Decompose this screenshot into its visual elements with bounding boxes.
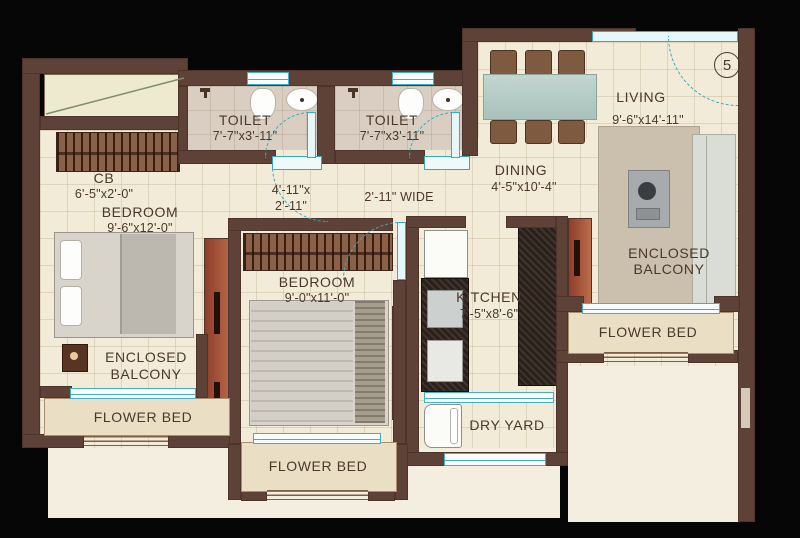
kitchen-dims: 7'-5"x8'-6" — [460, 307, 518, 321]
duct-corner-box — [44, 74, 188, 120]
tv-knob — [638, 182, 656, 200]
wall — [40, 386, 72, 398]
dining-label: DINING — [495, 162, 548, 178]
bedroom-2-label: BEDROOM — [279, 274, 356, 290]
wall — [738, 28, 755, 522]
shower-stem-toilet-1 — [204, 88, 207, 98]
pillow-1-bedroom-1 — [60, 240, 82, 280]
wall — [228, 218, 393, 231]
bedroom-2-dims: 9'-0"x11'-0" — [285, 291, 349, 305]
wall — [406, 216, 466, 228]
cupboard-dims: 6'-5"x2'-0" — [75, 187, 133, 201]
duvet-bedroom-2 — [251, 302, 353, 422]
toilet-2-label: TOILET — [366, 112, 418, 128]
sofa-balcony-right — [692, 134, 736, 310]
passage-dims-line2: 2'-11" — [275, 199, 307, 213]
wall — [393, 280, 406, 444]
window-balcony-left — [70, 388, 196, 399]
wall — [556, 216, 568, 456]
dining-chair — [525, 120, 552, 144]
pillow-2-bedroom-1 — [60, 286, 82, 326]
flower-bed-right-label: FLOWER BED — [599, 324, 698, 340]
wall — [22, 58, 188, 74]
kitchen-counter-right — [518, 222, 558, 386]
wall — [556, 296, 584, 312]
door-threshold-toilet-2 — [424, 156, 470, 170]
outside-area-bottom-right — [568, 366, 738, 522]
dining-table — [483, 74, 597, 120]
wall — [406, 216, 419, 456]
window-dry-yard — [444, 453, 546, 466]
cupboard-label: CB — [94, 170, 115, 186]
balcony-left-label-line1: ENCLOSED — [105, 349, 187, 365]
unit-number-badge: 5 — [714, 52, 740, 78]
dining-chair — [525, 50, 552, 76]
fridge-kitchen — [424, 230, 468, 278]
wall — [196, 334, 208, 398]
railing-flower-bed-right — [604, 352, 688, 362]
washbasin-toilet-1 — [286, 88, 318, 111]
wall — [228, 444, 241, 500]
kitchen-label: KITCHEN — [456, 289, 522, 305]
floor-plan: TOILET 7'-7"x3'-11" TOILET 7'-7"x3'-11" … — [0, 0, 800, 538]
wall — [40, 116, 188, 130]
shower-stem-toilet-2 — [352, 88, 355, 98]
window-bedroom-2 — [253, 433, 381, 444]
dining-chair — [558, 50, 585, 76]
washbasin-toilet-2 — [432, 88, 464, 111]
sofa-seat-line — [706, 136, 707, 306]
window-toilet-2 — [392, 72, 434, 85]
bedroom-1-label: BEDROOM — [102, 204, 179, 220]
blanket-bedroom-1 — [120, 234, 176, 334]
toilet-1-dims: 7'-7"x3'-11" — [213, 129, 277, 143]
living-label: LIVING — [616, 89, 666, 105]
dining-dims: 4'-5"x10'-4" — [491, 180, 556, 194]
tv-base — [636, 208, 660, 220]
shaft-panel-handle — [214, 292, 220, 334]
toilet-2-dims: 7'-7"x3'-11" — [360, 129, 424, 143]
dining-chair — [490, 50, 517, 76]
flower-bed-left-label: FLOWER BED — [94, 409, 193, 425]
wardrobe-bedroom-1 — [56, 132, 180, 172]
dining-chair — [558, 120, 585, 144]
balcony-right-label-line1: ENCLOSED — [628, 245, 710, 261]
shaft-panel-handle — [574, 240, 580, 276]
unit-number: 5 — [723, 57, 731, 74]
balcony-right-label-line2: BALCONY — [633, 261, 704, 277]
window-kitchen-dry-yard — [424, 392, 554, 403]
wall — [506, 216, 556, 228]
railing-flower-bed-left — [84, 436, 168, 446]
wall — [178, 150, 276, 164]
passage-dims-line1: 4'-11"x — [272, 183, 311, 197]
dining-chair — [490, 120, 517, 144]
bedroom-1-dims: 9'-6"x12'-0" — [107, 221, 172, 235]
wall — [168, 434, 230, 448]
wall — [22, 434, 84, 448]
window-toilet-1 — [247, 72, 289, 85]
lamp-balcony-left — [70, 352, 78, 360]
flower-bed-center-label: FLOWER BED — [269, 458, 368, 474]
stove-kitchen — [427, 340, 463, 382]
shaft-panel-kitchen-right — [568, 218, 592, 308]
dry-yard-label: DRY YARD — [469, 417, 544, 433]
wall — [22, 58, 40, 448]
toilet-1-label: TOILET — [219, 112, 271, 128]
corridor-width-label: 2'-11" WIDE — [364, 190, 433, 204]
balcony-left-label-line2: BALCONY — [110, 366, 181, 382]
window-balcony-right — [582, 303, 720, 314]
living-dims: 9'-6"x14'-11" — [612, 113, 684, 127]
washing-machine-door — [450, 408, 458, 444]
wall — [317, 86, 335, 164]
railing-flower-bed-center — [267, 490, 368, 500]
wall-niche — [741, 388, 750, 428]
wall — [462, 28, 478, 156]
headboard-bedroom-2 — [355, 301, 385, 423]
